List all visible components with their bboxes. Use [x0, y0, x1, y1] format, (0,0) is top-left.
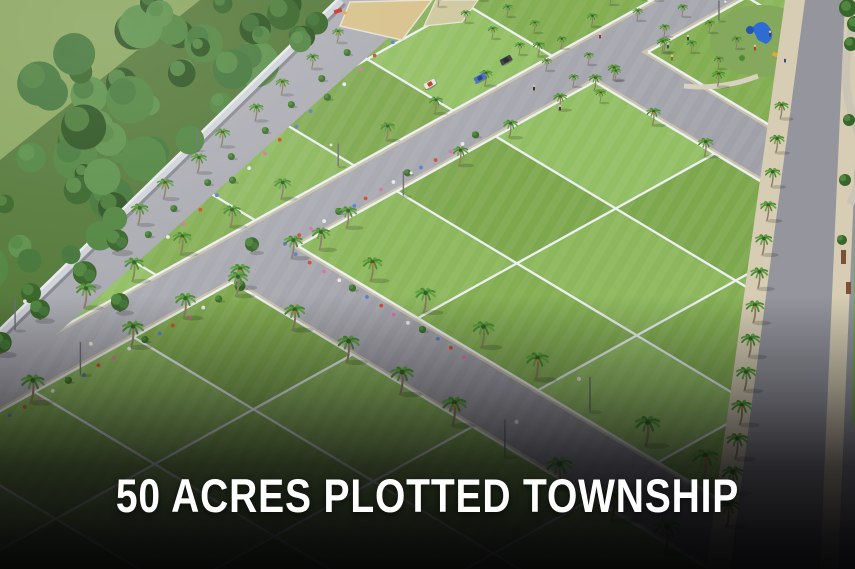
banner: 50 ACRES PLOTTED TOWNSHIP	[0, 468, 855, 523]
township-aerial-render: 50 ACRES PLOTTED TOWNSHIP	[0, 0, 855, 569]
banner-title: 50 ACRES PLOTTED TOWNSHIP	[116, 468, 739, 523]
